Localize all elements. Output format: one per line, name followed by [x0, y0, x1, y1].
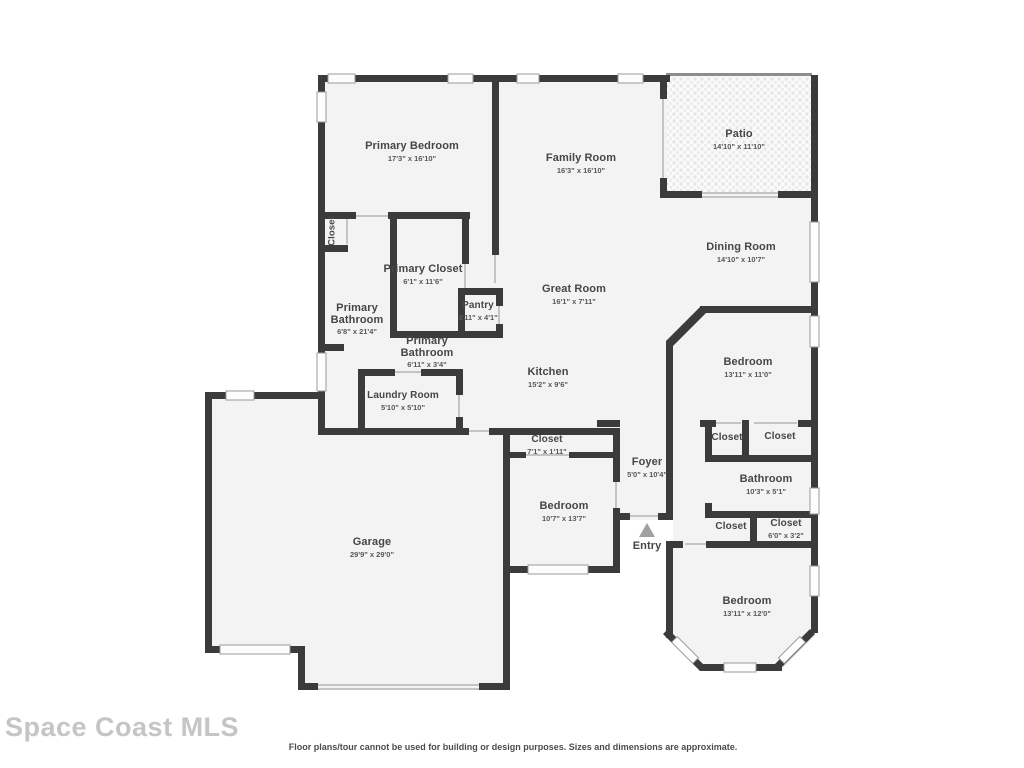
entry-arrow-icon [639, 523, 655, 537]
floorplan-drawing [0, 0, 1024, 768]
patio-screen-top [666, 73, 812, 76]
floorplan-page: Primary Bedroom 17'3" x 16'10" Family Ro… [0, 0, 1024, 768]
patio-hatch [667, 76, 811, 192]
disclaimer-text: Floor plans/tour cannot be used for buil… [289, 742, 738, 752]
watermark-space-coast-mls: Space Coast MLS [5, 712, 239, 743]
